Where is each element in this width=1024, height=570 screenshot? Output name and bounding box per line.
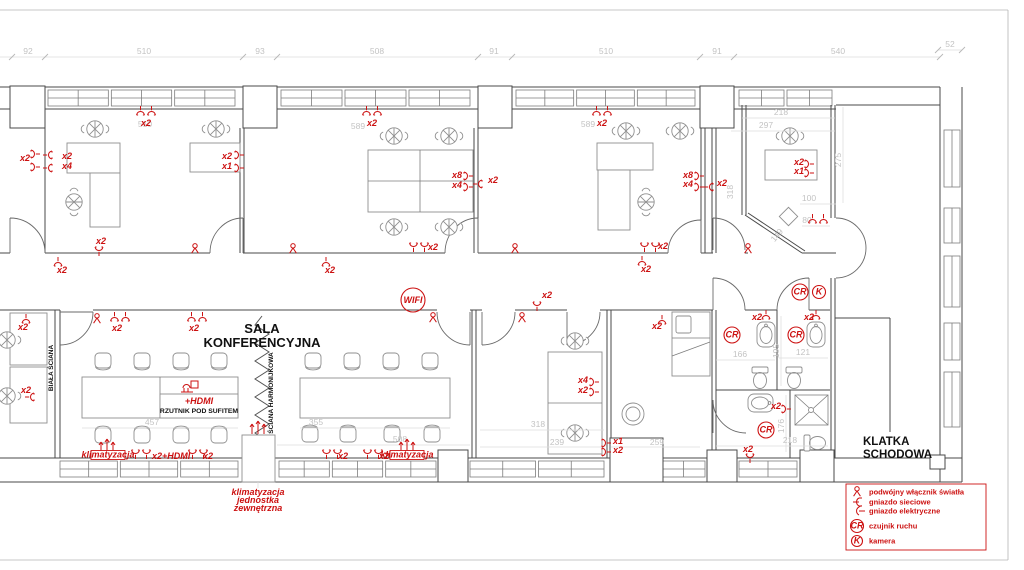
svg-text:x1: x1	[221, 161, 232, 171]
svg-text:klimatyzacja: klimatyzacja	[380, 450, 433, 460]
svg-text:gniazdo sieciowe: gniazdo sieciowe	[869, 498, 931, 507]
svg-text:121: 121	[796, 347, 810, 357]
svg-text:x4: x4	[682, 179, 693, 189]
svg-text:x2: x2	[742, 444, 753, 454]
svg-text:259: 259	[650, 437, 664, 447]
white-wall-label: BIAŁA ŚCIANA	[46, 345, 55, 392]
svg-text:x2: x2	[221, 151, 232, 161]
svg-text:CR: CR	[726, 330, 739, 340]
svg-text:510: 510	[599, 46, 613, 56]
svg-text:166: 166	[733, 349, 747, 359]
svg-text:x2: x2	[61, 151, 72, 161]
staircase-label-line1: KLATKA	[863, 436, 909, 448]
svg-text:x2: x2	[612, 445, 623, 455]
conference-room-label-line2: KONFERENCYJNA	[203, 335, 321, 350]
floor-plan: 9251093508915109154052510589589218297275…	[0, 0, 1024, 570]
svg-text:x2: x2	[20, 385, 31, 395]
svg-text:149: 149	[768, 226, 785, 244]
svg-text:CR: CR	[760, 425, 773, 435]
svg-text:457: 457	[145, 417, 159, 427]
svg-text:91: 91	[489, 46, 499, 56]
svg-text:92: 92	[23, 46, 33, 56]
svg-text:CR: CR	[851, 521, 864, 531]
svg-text:x2: x2	[716, 178, 727, 188]
svg-text:x4: x4	[61, 161, 72, 171]
svg-text:x2: x2	[337, 451, 348, 461]
svg-text:x2+HDMI: x2+HDMI	[151, 451, 191, 461]
svg-text:x2: x2	[487, 175, 498, 185]
svg-text:218: 218	[774, 107, 788, 117]
projector-label: RZUTNIK POD SUFITEM	[160, 408, 238, 415]
svg-text:508: 508	[370, 46, 384, 56]
svg-text:K: K	[816, 287, 824, 297]
svg-text:589: 589	[351, 121, 365, 131]
svg-text:czujnik ruchu: czujnik ruchu	[869, 522, 918, 531]
svg-text:WIFI: WIFI	[404, 295, 423, 305]
svg-text:239: 239	[550, 437, 564, 447]
svg-text:297: 297	[759, 120, 773, 130]
svg-text:91: 91	[712, 46, 722, 56]
legend: podwójny włącznik światłagniazdo sieciow…	[846, 484, 986, 550]
svg-text:x2: x2	[140, 118, 151, 128]
svg-text:x2: x2	[366, 118, 377, 128]
svg-text:x2: x2	[751, 312, 762, 322]
svg-text:gniazdo elektryczne: gniazdo elektryczne	[869, 507, 940, 516]
svg-text:540: 540	[831, 46, 845, 56]
svg-text:x2: x2	[596, 118, 607, 128]
staircase-label-line2: SCHODOWA	[863, 449, 932, 461]
svg-text:195: 195	[771, 344, 781, 358]
svg-text:510: 510	[137, 46, 151, 56]
svg-text:218: 218	[783, 435, 797, 445]
svg-text:100: 100	[802, 193, 816, 203]
svg-text:kamera: kamera	[869, 537, 896, 546]
svg-text:x4: x4	[451, 180, 462, 190]
svg-text:x2: x2	[188, 323, 199, 333]
svg-text:275: 275	[833, 153, 843, 167]
svg-text:x2: x2	[541, 290, 552, 300]
svg-text:93: 93	[255, 46, 265, 56]
svg-text:x4: x4	[577, 375, 588, 385]
svg-text:x2: x2	[19, 153, 30, 163]
svg-text:589: 589	[581, 119, 595, 129]
svg-text:x2: x2	[111, 323, 122, 333]
svg-text:klimatyzacja: klimatyzacja	[81, 450, 134, 460]
svg-text:318: 318	[531, 419, 545, 429]
ac-external-unit	[242, 435, 275, 482]
svg-text:+HDMI: +HDMI	[185, 396, 214, 406]
svg-text:CR: CR	[794, 287, 807, 297]
svg-text:x2: x2	[651, 321, 662, 331]
svg-text:x2: x2	[770, 401, 781, 411]
svg-text:x2: x2	[95, 236, 106, 246]
conference-room-label-line1: SALA	[244, 321, 280, 336]
svg-text:podwójny włącznik światła: podwójny włącznik światła	[869, 488, 965, 497]
svg-text:355: 355	[309, 417, 323, 427]
svg-text:x8: x8	[451, 170, 462, 180]
wall-pillars	[10, 86, 834, 482]
svg-text:CR: CR	[790, 330, 803, 340]
accordion-wall-label: ŚCIANA HARMONIJKOWA	[266, 352, 275, 434]
svg-text:x2: x2	[577, 385, 588, 395]
svg-text:52: 52	[945, 39, 955, 49]
svg-text:176: 176	[776, 419, 786, 433]
svg-text:x1: x1	[793, 166, 804, 176]
svg-text:zewnętrzna: zewnętrzna	[233, 503, 283, 513]
